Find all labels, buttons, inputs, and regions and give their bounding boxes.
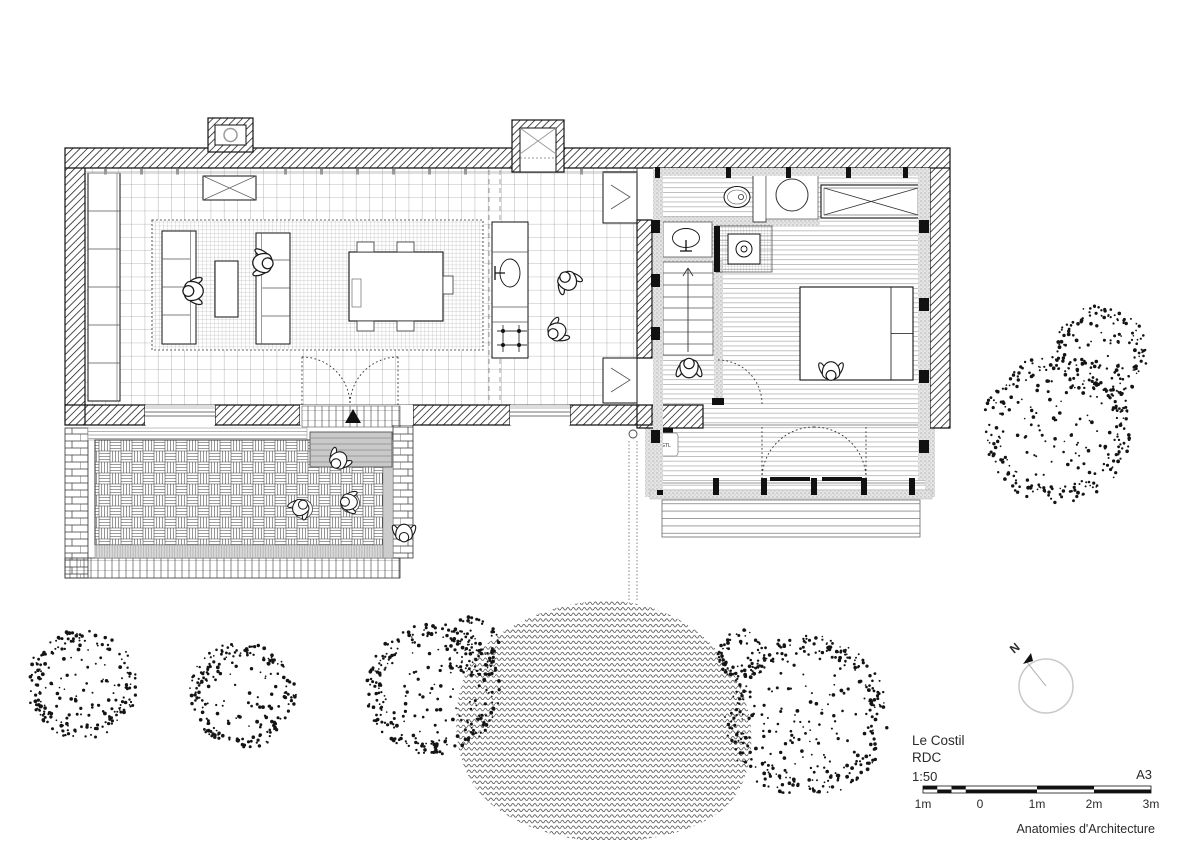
bed [800, 287, 913, 380]
scale-tick-label: 2m [1086, 797, 1103, 811]
balustrade-bar [822, 477, 862, 481]
title-block: Le Costil RDC 1:50 A3 1m 0 1m 2m 3m Anat… [912, 733, 1159, 836]
terrace-border-left [65, 428, 88, 578]
terrace-step-bottom [95, 545, 383, 558]
tree-stipple-a [29, 630, 137, 739]
coffee-table [215, 261, 238, 317]
drain-trace [629, 430, 637, 600]
sheet-size-label: A3 [1136, 767, 1152, 782]
veranda-fascia [650, 490, 932, 499]
north-arrow: N [1007, 640, 1073, 713]
partition-end-cap [712, 398, 724, 405]
bedroom-wing [653, 168, 930, 425]
balustrade-bar [770, 477, 810, 481]
tall-cabinet-bottom [603, 358, 637, 403]
window [510, 405, 570, 425]
wood-deck [662, 500, 920, 537]
kitchen-counter [492, 222, 528, 358]
tree-stipple-e [984, 356, 1131, 504]
dining-table [349, 252, 443, 321]
chimney [208, 118, 253, 152]
drain-outlet-icon [629, 430, 637, 438]
floor-plan-page: GTL [0, 0, 1200, 849]
shower-partition [753, 168, 766, 222]
living-room [85, 168, 637, 405]
window [145, 405, 215, 425]
staircase [663, 262, 713, 355]
entrance-threshold [300, 405, 413, 427]
fireplace [203, 176, 256, 200]
project-title: Le Costil [912, 733, 965, 748]
tall-cabinet-top [603, 172, 637, 223]
floor-plan-drawing: GTL [0, 0, 1200, 849]
veranda: GTL [645, 425, 935, 499]
veranda-floor [648, 425, 935, 497]
studio-credit: Anatomies d'Architecture [1016, 822, 1155, 836]
skylight-shaft [512, 120, 564, 172]
terrace-border-bottom [65, 558, 400, 578]
scale-label: 1:50 [912, 769, 937, 784]
level-label: RDC [912, 750, 941, 765]
toilet [724, 187, 750, 208]
scale-bar: 1m 0 1m 2m 3m [915, 786, 1160, 811]
tree-stipple-d2 [717, 628, 767, 680]
bush-hedge [456, 601, 751, 842]
hall-partition [714, 258, 723, 405]
shower [766, 171, 818, 219]
scale-tick-label: 0 [977, 797, 984, 811]
tree-stipple-b [189, 643, 297, 748]
wardrobe [821, 185, 921, 218]
scale-tick-label: 1m [1029, 797, 1046, 811]
north-label: N [1007, 640, 1023, 656]
flue-icon [224, 129, 237, 142]
washbasin [663, 222, 712, 257]
scale-tick-label: 1m [915, 797, 932, 811]
storage-cabinets-left [88, 173, 120, 401]
scale-tick-label: 3m [1143, 797, 1160, 811]
wood-stove [714, 226, 772, 272]
brick-terrace [65, 425, 413, 578]
terrace-step-top [88, 428, 307, 440]
